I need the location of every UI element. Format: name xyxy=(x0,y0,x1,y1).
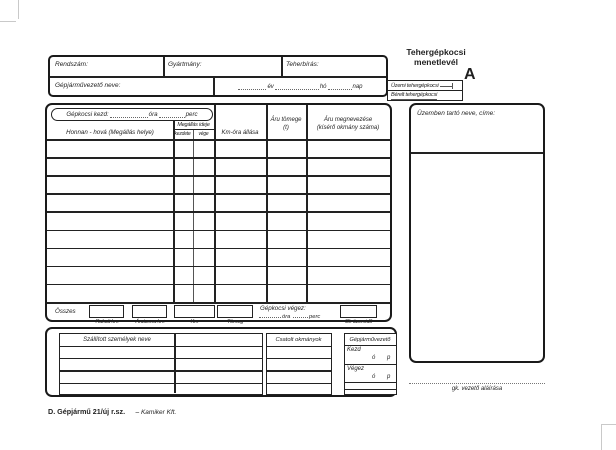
total-tonne-km-box xyxy=(132,305,167,318)
operating-time-label: Gk üzemidő xyxy=(332,319,385,326)
day-suffix: nap xyxy=(353,84,363,90)
end-hour-suffix: óra xyxy=(282,314,290,320)
col-cargo-header: Áru megnevezése (kísérő okmány száma) xyxy=(306,117,390,132)
day-blank xyxy=(328,84,352,90)
col-route-header: Honnan - hová (Megállás helye) xyxy=(47,129,173,137)
type-option-company: Üzemi tehergépkocsi xyxy=(391,83,439,89)
col-stop-start-header: kezdete xyxy=(172,131,193,137)
row-separator xyxy=(267,370,331,371)
operating-time-box xyxy=(340,305,377,318)
grid-line xyxy=(411,152,543,154)
passengers-header: Szállított személyek neve xyxy=(60,337,174,345)
end-minute-suffix: perc xyxy=(309,314,320,320)
driver-end-minute-abbr: p xyxy=(387,374,390,381)
row-separator xyxy=(47,211,390,213)
scan-edge-mark xyxy=(601,424,602,450)
grid-line xyxy=(345,382,396,383)
driver-time-table: Gépjárművezető Kezd ó p Végez ó p xyxy=(344,333,397,395)
start-label: Gépkocsi kezd: xyxy=(66,111,108,118)
grid-line xyxy=(388,90,462,91)
year-blank xyxy=(238,84,266,90)
row-separator xyxy=(47,284,390,286)
operator-box: Üzemben tartó neve, címe: xyxy=(409,103,545,363)
scan-edge-mark xyxy=(0,21,16,22)
end-time-fields: óra perc xyxy=(258,312,320,320)
total-loaded-km-box xyxy=(89,305,124,318)
grid-line xyxy=(47,302,390,304)
end-hour-blank xyxy=(259,312,281,318)
strike-tick xyxy=(452,83,453,89)
row-separator xyxy=(47,230,390,232)
start-hour-suffix: óra xyxy=(149,111,158,118)
date-fields: év hó nap xyxy=(213,79,387,95)
row-separator xyxy=(47,193,390,195)
grid-line xyxy=(174,334,176,393)
row-separator xyxy=(47,157,390,159)
totals-label: Összes xyxy=(55,308,76,315)
form-title: Tehergépkocsi menetlevél xyxy=(392,47,480,67)
passengers-table: Szállított személyek neve xyxy=(59,333,263,395)
capacity-label: Teherbírás: xyxy=(286,61,319,68)
total-weight-label: Tömeg xyxy=(209,319,261,326)
col-stop-end-header: vége xyxy=(193,131,214,137)
waybill-form-page: Rendszám: Gyártmány: Teherbírás: Gépjárm… xyxy=(0,0,616,450)
driver-header: Gépjárművezető xyxy=(345,337,395,344)
bottom-section-box: Szállított személyek neve Csatolt okmány… xyxy=(45,327,397,397)
row-separator xyxy=(60,370,262,371)
end-minute-blank xyxy=(293,312,308,318)
signature-label: gk. vezető aláírása xyxy=(409,386,545,392)
row-separator xyxy=(47,266,390,268)
col-weight-header: Áru tömege (t) xyxy=(266,117,306,132)
row-separator xyxy=(47,175,390,177)
row-separator xyxy=(60,383,262,384)
series-letter: A xyxy=(464,66,476,84)
grid-line xyxy=(193,129,194,302)
driver-start-minute-abbr: p xyxy=(387,355,390,362)
col-odometer-header: Km-óra állása xyxy=(214,130,266,138)
form-title-line1: Tehergépkocsi xyxy=(392,47,480,57)
row-separator xyxy=(60,358,262,359)
col-cargo-line1: Áru megnevezése xyxy=(306,117,390,125)
col-stop-time-header: Megállás ideje xyxy=(173,122,214,129)
col-cargo-line2: (kísérő okmány száma) xyxy=(306,125,390,133)
driver-start-hour-abbr: ó xyxy=(372,355,375,362)
grid-line xyxy=(266,105,268,302)
grid-line xyxy=(47,139,390,141)
vehicle-header-box: Rendszám: Gyártmány: Teherbírás: Gépjárm… xyxy=(48,55,388,97)
start-minute-blank xyxy=(159,112,185,118)
start-hour-blank xyxy=(110,112,148,118)
row-separator xyxy=(267,346,331,347)
grid-line xyxy=(50,76,386,78)
grid-line xyxy=(306,105,308,302)
trip-table: Gépkocsi kezd: óra perc Honnan - hová (M… xyxy=(45,103,392,322)
grid-line xyxy=(281,57,283,76)
vehicle-type-box: Üzemi tehergépkocsi Bérelt tehergépkocsi xyxy=(387,80,463,101)
scan-edge-mark xyxy=(601,424,616,425)
start-minute-suffix: perc xyxy=(186,111,198,118)
driver-end-hour-abbr: ó xyxy=(372,374,375,381)
publisher: – Kamiker Kft. xyxy=(136,409,177,416)
start-time-pill: Gépkocsi kezd: óra perc xyxy=(51,108,213,121)
scan-edge-mark xyxy=(18,0,19,19)
plate-number-label: Rendszám: xyxy=(55,61,88,68)
row-separator xyxy=(60,346,262,347)
col-weight-line1: Áru tömege xyxy=(266,117,306,125)
documents-header: Csatolt okmányok xyxy=(267,337,330,344)
footer: D. Gépjármű 21/új r.sz. – Kamiker Kft. xyxy=(48,401,176,419)
form-code: D. Gépjármű 21/új r.sz. xyxy=(48,407,125,416)
month-blank xyxy=(275,84,319,90)
documents-table: Csatolt okmányok xyxy=(266,333,332,395)
row-separator xyxy=(267,383,331,384)
signature-line xyxy=(409,383,545,384)
driver-start-label: Kezd xyxy=(347,347,361,354)
type-option-rented: Bérelt tehergépkocsi xyxy=(391,92,437,100)
row-separator xyxy=(47,248,390,250)
driver-name-label: Gépjárművezető neve: xyxy=(55,82,120,89)
grid-line xyxy=(345,389,396,390)
grid-line xyxy=(173,129,214,130)
total-weight-box xyxy=(217,305,253,318)
row-separator xyxy=(267,358,331,359)
total-km-box xyxy=(174,305,215,318)
col-weight-line2: (t) xyxy=(266,125,306,133)
make-label: Gyártmány: xyxy=(168,61,202,68)
year-suffix: év xyxy=(267,84,273,90)
driver-end-label: Végez xyxy=(347,366,364,373)
grid-line xyxy=(163,57,165,76)
month-suffix: hó xyxy=(320,84,327,90)
operator-label: Üzemben tartó neve, címe: xyxy=(417,110,495,117)
